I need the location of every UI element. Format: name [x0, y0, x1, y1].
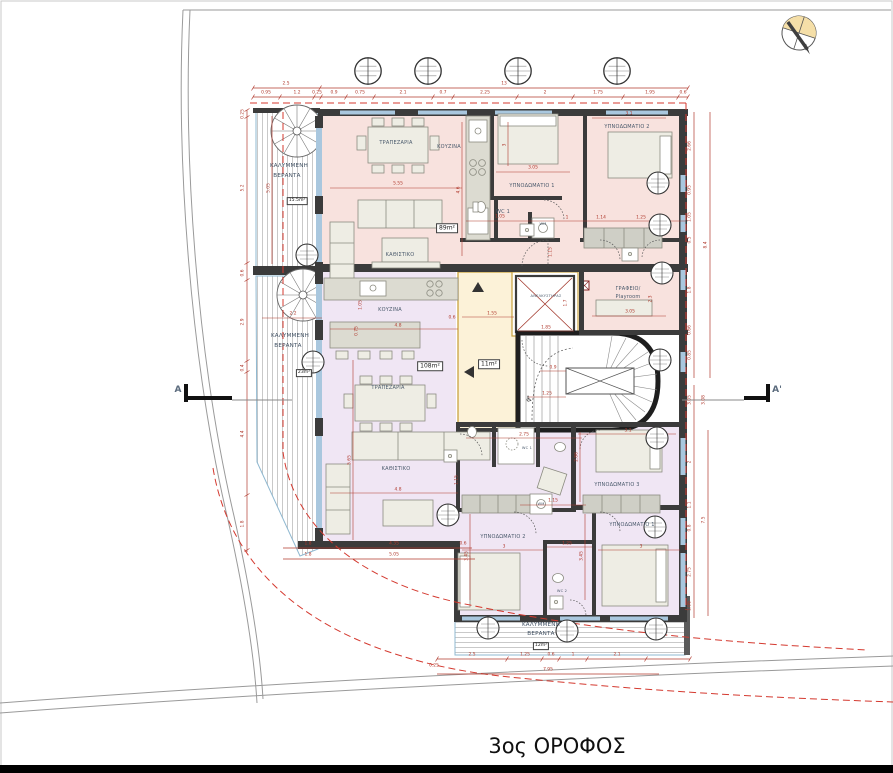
dim-label: 1.95 [645, 91, 655, 96]
dim-label: 0.7 [440, 91, 447, 96]
dim-label: 1.8 [688, 287, 693, 294]
dim-label: 2 [688, 461, 693, 464]
dim-label: 3 [503, 545, 506, 550]
room-label-office-1: ΓΡΑΦΕΙΟ/ [615, 286, 640, 292]
dim-label: 1.05 [688, 212, 693, 222]
area-badge-11: 11m² [478, 359, 500, 369]
veranda-top-area: 15.5m² [287, 197, 308, 205]
dim-label: 1.8 [305, 553, 312, 558]
dim-label: 3.05 [528, 166, 538, 171]
veranda-bottom-label-1: ΚΑΛΥΜΜΕΝΗ [522, 622, 560, 628]
room-label-dining: ΤΡΑΠΕΖΑΡΙΑ [379, 140, 412, 146]
dim-label: 3.1 [625, 429, 632, 434]
dim-label: 2.1 [614, 653, 621, 658]
dim-label: 0.66 [688, 325, 693, 335]
desk [596, 300, 652, 316]
dim-label: 1.2 [294, 91, 301, 96]
dim-label: 0.25 [429, 664, 439, 669]
room-label-wc2-b: WC 2 [557, 589, 567, 593]
dim-label: 1.25 [562, 542, 572, 547]
wardrobe [583, 495, 660, 513]
veranda-bottom-area: 12m² [533, 642, 549, 650]
dim-label: 1.75 [593, 91, 603, 96]
dim-label: 1.05 [359, 300, 364, 310]
area-badge-89: 89m² [436, 223, 458, 233]
section-marker-a-prime: A' [772, 385, 782, 395]
dim-label: 2.1 [400, 91, 407, 96]
dim-label: 4.6 [457, 187, 462, 194]
dim-label: 0.8 [688, 525, 693, 532]
dim-label: 4.4 [241, 431, 246, 438]
dim-label: 0.4 [241, 365, 246, 372]
dim-label: 7.5 [702, 517, 707, 524]
tv-bench [372, 262, 440, 268]
dim-label: 4.8 [395, 324, 402, 329]
veranda-bottom-label-2: ΒΕΡΑΝΤΑ [527, 631, 554, 637]
sofa [358, 200, 442, 228]
dim-label: 5.55 [393, 182, 403, 187]
section-marker-a: A [175, 385, 182, 395]
veranda-mid-area: 23m² [296, 369, 312, 377]
room-label-bedroom2: ΥΠΝΟΔΩΜΑΤΙΟ 2 [604, 124, 649, 130]
dim-label: 5.05 [267, 183, 272, 193]
dim-label: 1.55 [487, 312, 497, 317]
sofa [326, 464, 350, 534]
dim-label: 0.6 [680, 91, 687, 96]
kitchen-island [330, 322, 420, 348]
dim-label: 1.8 [305, 542, 312, 547]
dim-label: 2.75 [688, 567, 693, 577]
dim-label: 0.6 [548, 653, 555, 658]
floor-plan-sheet: ΤΡΑΠΕΖΑΡΙΑ ΚΟΥΖΙΝΑ ΚΑΘΙΣΤΙΚΟ ΥΠΝΟΔΩΜΑΤΙΟ… [0, 0, 893, 773]
dim-label: 1.06 [688, 601, 693, 611]
room-label-living: ΚΑΘΙΣΤΙΚΟ [386, 252, 415, 258]
dim-label: 2.2 [290, 312, 297, 317]
dim-label: 3 [640, 545, 643, 550]
dim-label: 2.75 [519, 433, 529, 438]
room-label-bedroom1: ΥΠΝΟΔΩΜΑΤΙΟ 1 [509, 183, 554, 189]
dim-label: 0.6 [241, 270, 246, 277]
dim-label: 1.25 [636, 216, 646, 221]
wheelchair-icon: ♿ [525, 395, 532, 404]
dim-label: 2.3 [649, 296, 654, 303]
north-compass-icon [778, 12, 821, 55]
dim-label: 3 [503, 144, 508, 147]
wardrobe [462, 495, 532, 513]
dim-label: 0.75 [355, 326, 360, 336]
coffee-table [383, 500, 433, 526]
dim-label: 1.1 [688, 502, 693, 509]
dim-label: 7.95 [543, 668, 553, 673]
dim-label: 1.14 [596, 216, 606, 221]
dim-label: 4.8 [395, 488, 402, 493]
dim-label: 2 [544, 91, 547, 96]
dim-label: 0.9 [550, 366, 557, 371]
room-label-wc1-b: WC 1 [522, 446, 532, 450]
dim-label: 1.05 [495, 215, 505, 220]
dim-label: 1.85 [541, 326, 551, 331]
dim-label: 1.15 [549, 247, 554, 257]
dim-label: 0.6 [460, 542, 467, 547]
dim-label: 3.45 [465, 551, 470, 561]
room-label-living-b: ΚΑΘΙΣΤΙΚΟ [382, 466, 411, 472]
toilet [553, 574, 564, 583]
sheet-bottom-bar [0, 765, 893, 773]
dim-label: 5.05 [389, 553, 399, 558]
room-label-office-2: Playroom [616, 294, 641, 300]
dim-label: 0.25 [241, 109, 246, 119]
sofa [330, 222, 354, 285]
dim-label: 0.5 [688, 237, 693, 244]
dim-label: 0.75 [355, 91, 365, 96]
lobby [458, 272, 516, 430]
dim-label: 0.9 [331, 91, 338, 96]
room-label-wm-b: WM [537, 502, 544, 506]
dim-label: 5.65 [348, 455, 353, 465]
dim-label: 1 [566, 216, 569, 221]
area-badge-108: 108m² [417, 361, 443, 371]
dim-label: 4.35 [389, 542, 399, 547]
dim-label: 2.86 [575, 452, 580, 462]
dim-label: 2.5 [283, 82, 290, 87]
room-label-bedroom3-b: ΥΠΝΟΔΩΜΑΤΙΟ 3 [594, 482, 639, 488]
dim-label: 3.08 [702, 395, 707, 405]
coffee-table [382, 238, 428, 262]
dim-label: 0.25 [312, 91, 322, 96]
toilet [468, 427, 477, 438]
dim-label: 0.95 [261, 91, 271, 96]
dim-label: 0.6 [449, 316, 456, 321]
veranda-mid-label-1: ΚΑΛΥΜΜΕΝΗ [271, 333, 309, 339]
dim-label: 1.7 [564, 300, 569, 307]
toilet [555, 443, 566, 452]
floor-plan-drawing [0, 0, 893, 773]
dim-label: 1.15 [455, 475, 460, 485]
veranda-top-label-1: ΚΑΛΥΜΜΕΝΗ [270, 163, 308, 169]
dim-label: 5.2 [241, 185, 246, 192]
veranda-top-label-2: ΒΕΡΑΝΤΑ [273, 173, 300, 179]
room-label-bedroom1-b: ΥΠΝΟΔΩΜΑΤΙΟ 1 [609, 522, 654, 528]
dim-label: 2.9 [241, 319, 246, 326]
dim-label: 0.85 [688, 350, 693, 360]
dim-label: 13 [501, 82, 507, 87]
dim-label: 1.25 [542, 392, 552, 397]
room-label-dining-b: ΤΡΑΠΕΖΑΡΙΑ [371, 385, 404, 391]
floor-title: 3ος ΟΡΟΦΟΣ [488, 734, 625, 758]
dim-label: 8.4 [704, 242, 709, 249]
dim-label: 1.8 [241, 521, 246, 528]
room-label-kitchen-b: ΚΟΥΖΙΝΑ [378, 307, 402, 313]
room-label-kitchen: ΚΟΥΖΙΝΑ [437, 144, 461, 150]
room-label-bedroom2-b: ΥΠΝΟΔΩΜΑΤΙΟ 2 [480, 534, 525, 540]
dim-label: 0.95 [688, 185, 693, 195]
dim-label: 3.45 [580, 551, 585, 561]
room-label-wm: WM [539, 222, 546, 226]
dim-label: 3.05 [688, 395, 693, 405]
veranda-mid-label-2: ΒΕΡΑΝΤΑ [274, 343, 301, 349]
dim-label: 3.05 [625, 310, 635, 315]
dim-label: 1.25 [520, 653, 530, 658]
dim-label: 1.15 [548, 499, 558, 504]
dim-label: 2.25 [480, 91, 490, 96]
dim-label: 2.66 [688, 141, 693, 151]
dim-label: 3.1 [626, 112, 633, 117]
dim-label: 2.5 [469, 653, 476, 658]
dim-label: 1 [572, 653, 575, 658]
elevator-label: ΑΝΕΛΚΥΣΤΗΡΑΣ [531, 294, 562, 298]
